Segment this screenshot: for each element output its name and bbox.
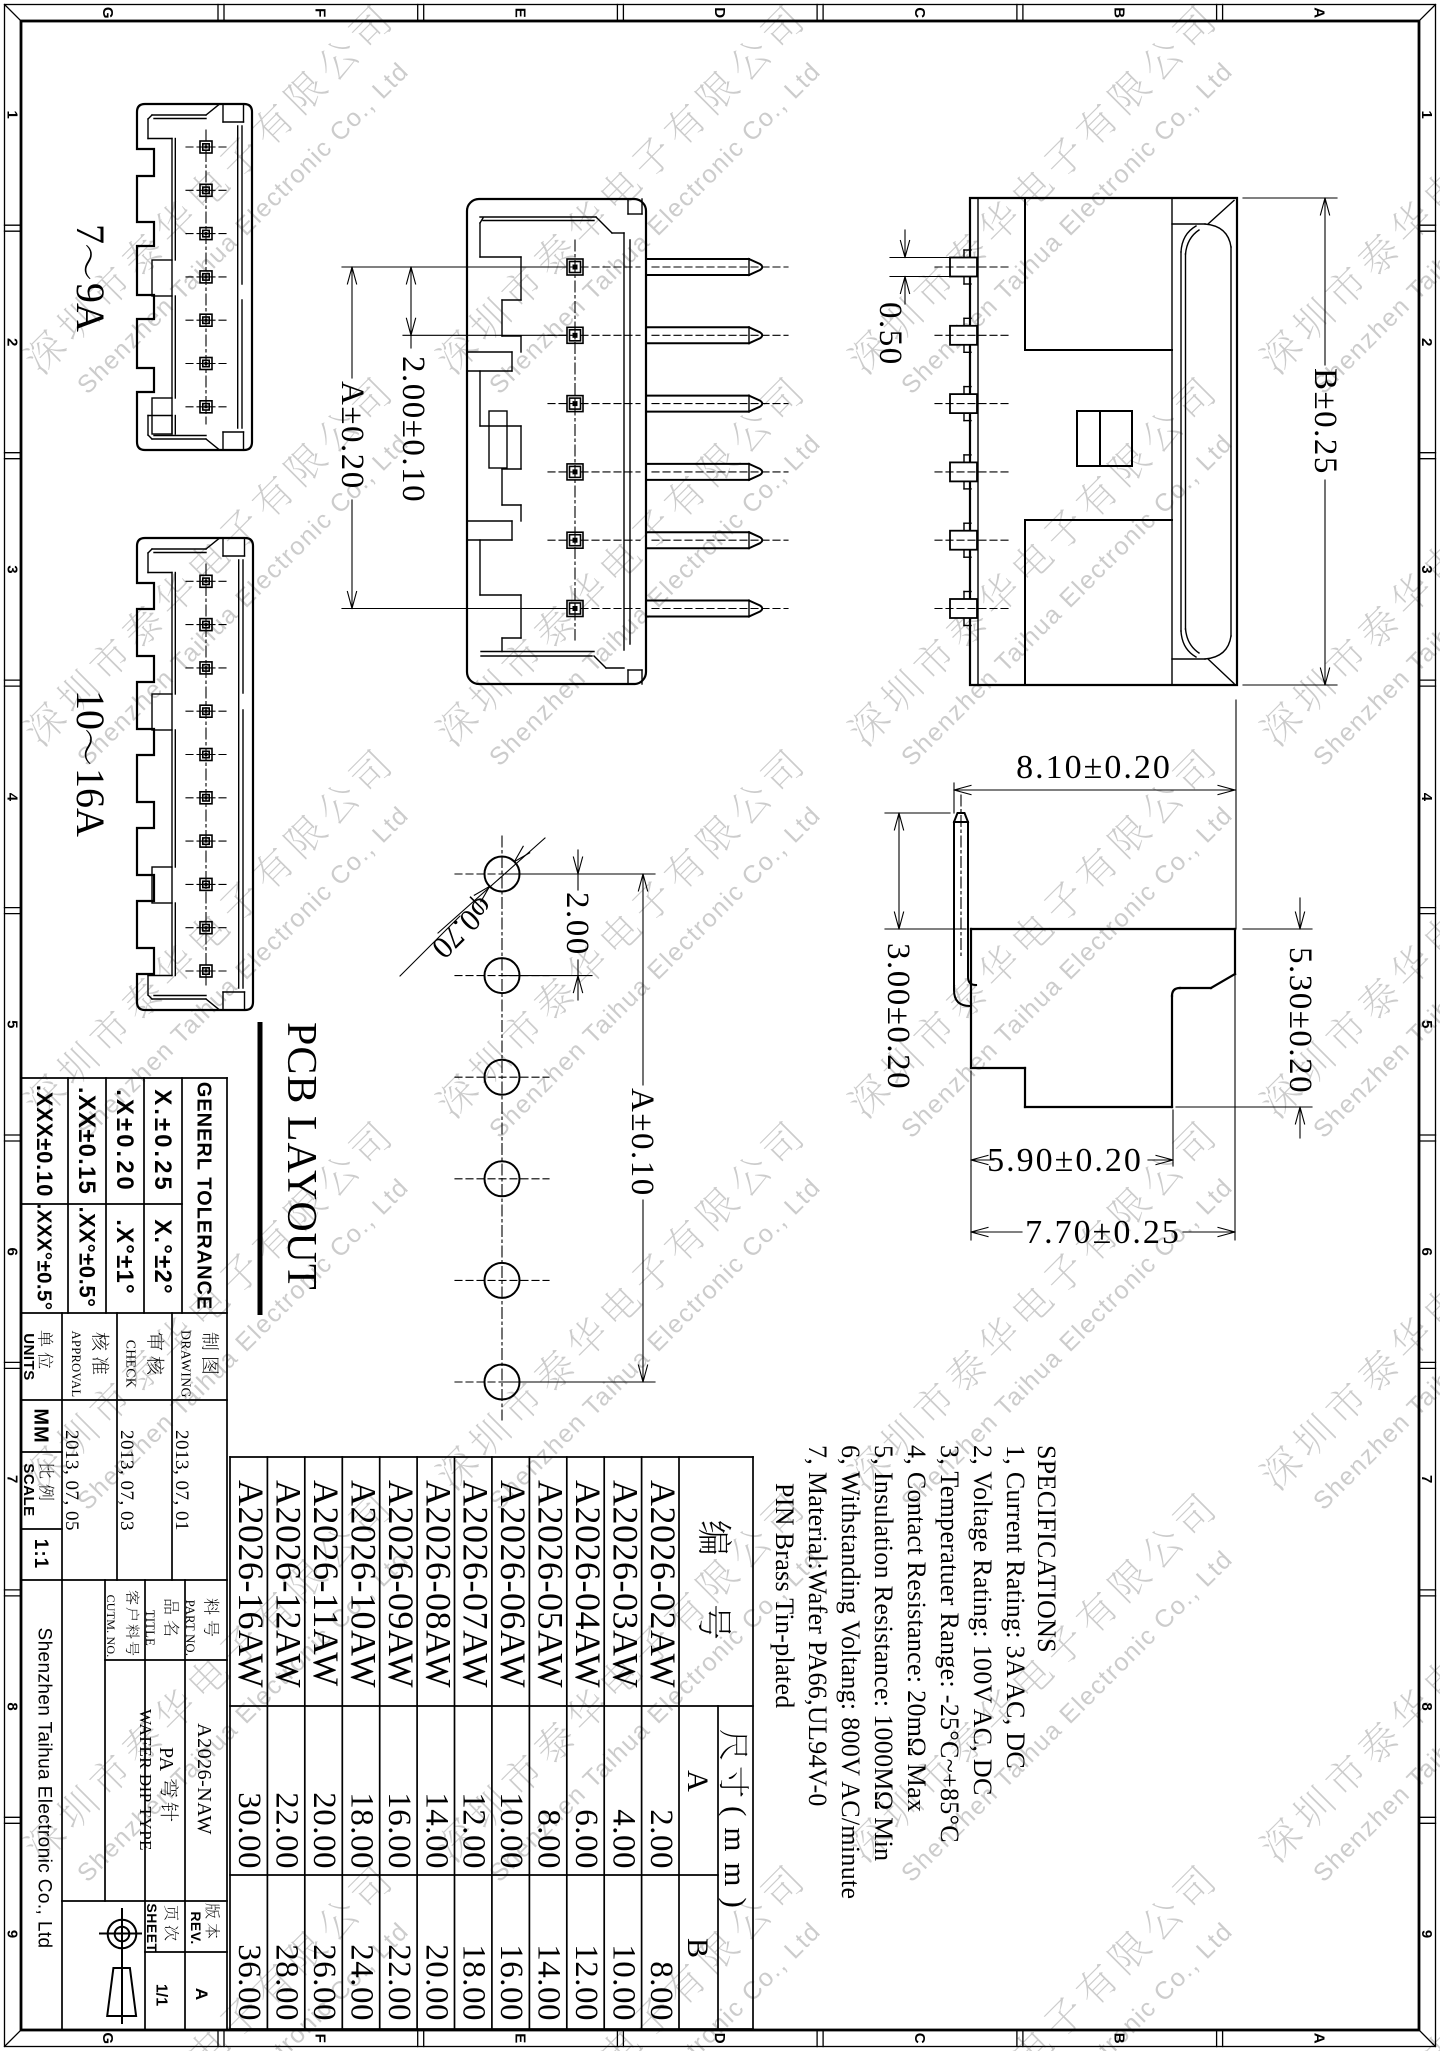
svg-text:A2026-08AW: A2026-08AW xyxy=(418,1480,458,1688)
svg-text:28.00: 28.00 xyxy=(269,1944,305,2021)
svg-text:2: 2 xyxy=(1418,338,1435,346)
svg-text:.XX°±0.5°: .XX°±0.5° xyxy=(75,1206,100,1307)
svg-text:9: 9 xyxy=(4,1930,21,1938)
svg-text:24.00: 24.00 xyxy=(344,1944,380,2021)
svg-text:PCB LAYOUT: PCB LAYOUT xyxy=(278,1022,324,1291)
svg-text:2: 2 xyxy=(4,338,21,346)
svg-text:PA: PA xyxy=(155,1747,177,1772)
svg-text:SCALE: SCALE xyxy=(20,1463,37,1516)
svg-text:3.00±0.20: 3.00±0.20 xyxy=(880,943,916,1090)
svg-text:3, Temperatuer Range: -25°C~+8: 3, Temperatuer Range: -25°C~+85°C xyxy=(935,1445,964,1843)
svg-text:.X°±1°: .X°±1° xyxy=(111,1219,138,1295)
svg-text:CHECK: CHECK xyxy=(123,1340,138,1388)
svg-text:A2026-16AW: A2026-16AW xyxy=(231,1480,271,1688)
svg-text:X.°±2°: X.°±2° xyxy=(149,1219,176,1295)
svg-text:A: A xyxy=(1310,7,1327,18)
svg-text:6: 6 xyxy=(1418,1248,1435,1256)
svg-text:A2026-07AW: A2026-07AW xyxy=(456,1480,496,1688)
svg-text:C: C xyxy=(911,2033,928,2044)
svg-text:A±0.20: A±0.20 xyxy=(334,381,370,490)
svg-text:PIN Brass Tin-plated: PIN Brass Tin-plated xyxy=(770,1483,799,1709)
svg-text:14.00: 14.00 xyxy=(531,1944,567,2021)
svg-text:22.00: 22.00 xyxy=(269,1792,305,1869)
svg-text:G: G xyxy=(99,7,116,19)
svg-text:2013, 07, 01: 2013, 07, 01 xyxy=(171,1430,192,1531)
svg-text:F: F xyxy=(312,8,329,17)
svg-text:7.70±0.25: 7.70±0.25 xyxy=(1025,1214,1181,1251)
svg-text:B: B xyxy=(1111,2033,1128,2044)
svg-text:A2026-04AW: A2026-04AW xyxy=(568,1480,608,1688)
svg-text:B: B xyxy=(1111,7,1128,18)
svg-text:10: 10 xyxy=(68,690,113,730)
svg-text:D: D xyxy=(711,7,728,18)
svg-text:0.50: 0.50 xyxy=(872,302,908,366)
svg-text:A±0.10: A±0.10 xyxy=(624,1088,660,1197)
svg-text:SPECIFICATIONS: SPECIFICATIONS xyxy=(1032,1445,1061,1653)
svg-text:7: 7 xyxy=(4,1475,21,1483)
svg-text:UNITS: UNITS xyxy=(20,1333,37,1381)
svg-text:2013, 07, 03: 2013, 07, 03 xyxy=(116,1430,137,1531)
svg-text:A: A xyxy=(192,1988,211,2000)
svg-text:5: 5 xyxy=(1418,1020,1435,1028)
svg-text:1:1: 1:1 xyxy=(30,1539,51,1569)
svg-text:A2026-05AW: A2026-05AW xyxy=(531,1480,571,1688)
svg-text:CUTM. NO.: CUTM. NO. xyxy=(104,1595,118,1658)
svg-text:Shenzhen Taihua Electronic Co.: Shenzhen Taihua Electronic Co., Ltd xyxy=(34,1627,55,1948)
svg-text:7: 7 xyxy=(1418,1475,1435,1483)
svg-text:2.00±0.10: 2.00±0.10 xyxy=(395,356,431,503)
svg-text:WAFER DIP TYPE: WAFER DIP TYPE xyxy=(136,1709,155,1851)
svg-text:4, Contact Resistance: 20mΩ Ma: 4, Contact Resistance: 20mΩ Max xyxy=(902,1445,931,1812)
svg-text:A2026-12AW: A2026-12AW xyxy=(269,1480,309,1688)
svg-text:X.±0.25: X.±0.25 xyxy=(149,1089,176,1193)
svg-text:DRAWING: DRAWING xyxy=(178,1330,193,1398)
svg-text:30.00: 30.00 xyxy=(231,1792,267,1869)
svg-text:2.00: 2.00 xyxy=(643,1809,679,1869)
svg-text:8.00: 8.00 xyxy=(531,1809,567,1869)
svg-text:F: F xyxy=(312,2034,329,2043)
svg-text:4: 4 xyxy=(1418,793,1435,802)
svg-text:APPROVAL: APPROVAL xyxy=(69,1331,83,1398)
svg-text:4.00: 4.00 xyxy=(605,1809,641,1869)
svg-text:A2026-03AW: A2026-03AW xyxy=(605,1480,645,1688)
svg-text:.XXX±0.10: .XXX±0.10 xyxy=(32,1085,57,1197)
svg-text:4: 4 xyxy=(4,793,21,802)
svg-text:8.00: 8.00 xyxy=(643,1961,679,2021)
svg-text:PART NO.: PART NO. xyxy=(183,1600,197,1657)
svg-text:MM: MM xyxy=(30,1408,52,1443)
svg-text:12.00: 12.00 xyxy=(456,1792,492,1869)
svg-text:A: A xyxy=(681,1770,714,1792)
svg-text:E: E xyxy=(511,8,528,18)
svg-text:5: 5 xyxy=(4,1020,21,1028)
svg-text:22.00: 22.00 xyxy=(381,1944,417,2021)
svg-text:6: 6 xyxy=(4,1248,21,1256)
svg-text:2013, 07, 05: 2013, 07, 05 xyxy=(61,1430,82,1531)
svg-text:9: 9 xyxy=(68,283,113,303)
svg-text:A2026-11AW: A2026-11AW xyxy=(306,1480,346,1687)
svg-text:.XX±0.15: .XX±0.15 xyxy=(73,1087,100,1195)
svg-text:B: B xyxy=(681,1938,714,1958)
svg-text:2, Voltage Rating: 100V AC, DC: 2, Voltage Rating: 100V AC, DC xyxy=(968,1445,997,1796)
svg-text:D: D xyxy=(711,2033,728,2044)
svg-text:20.00: 20.00 xyxy=(306,1792,342,1869)
svg-text:14.00: 14.00 xyxy=(418,1792,454,1869)
svg-text:5, Insulation Resistance: 1000: 5, Insulation Resistance: 1000MΩ Min xyxy=(869,1445,898,1861)
svg-text:2.00: 2.00 xyxy=(559,892,595,956)
svg-text:SHEET: SHEET xyxy=(144,1903,160,1952)
svg-text:.X±0.20: .X±0.20 xyxy=(111,1089,138,1193)
svg-text:3: 3 xyxy=(1418,565,1435,573)
svg-text:5.30±0.20: 5.30±0.20 xyxy=(1282,947,1318,1094)
svg-text:26.00: 26.00 xyxy=(306,1944,342,2021)
svg-text:18.00: 18.00 xyxy=(344,1792,380,1869)
svg-text:GENERL TOLERANCE: GENERL TOLERANCE xyxy=(193,1082,215,1311)
svg-text:1: 1 xyxy=(1418,111,1435,119)
svg-text:36.00: 36.00 xyxy=(231,1944,267,2021)
svg-text:10.00: 10.00 xyxy=(493,1792,529,1869)
svg-text:20.00: 20.00 xyxy=(418,1944,454,2021)
svg-text:8.10±0.20: 8.10±0.20 xyxy=(1016,749,1172,786)
svg-text:.XXX°±0.5°: .XXX°±0.5° xyxy=(33,1204,56,1311)
svg-text:6, Withstanding Voltang: 800V: 6, Withstanding Voltang: 800V AC/minute xyxy=(836,1445,865,1899)
svg-text:1, Current Rating: 3A AC, DC: 1, Current Rating: 3A AC, DC xyxy=(1001,1445,1030,1769)
svg-text:16A: 16A xyxy=(68,768,113,837)
svg-text:A2026-10AW: A2026-10AW xyxy=(344,1480,384,1688)
svg-text:5.90±0.20: 5.90±0.20 xyxy=(987,1142,1143,1179)
svg-text:3: 3 xyxy=(4,565,21,573)
svg-text:A: A xyxy=(68,303,113,332)
svg-text:(mm): (mm) xyxy=(718,1806,753,1919)
svg-text:C: C xyxy=(911,7,928,18)
svg-text:18.00: 18.00 xyxy=(456,1944,492,2021)
svg-text:A2026-NAW: A2026-NAW xyxy=(193,1723,215,1835)
svg-text:G: G xyxy=(99,2032,116,2044)
svg-text:12.00: 12.00 xyxy=(568,1944,604,2021)
svg-text:16.00: 16.00 xyxy=(381,1792,417,1869)
svg-text:A2026-09AW: A2026-09AW xyxy=(381,1480,421,1688)
svg-text:1: 1 xyxy=(4,111,21,119)
svg-text:9: 9 xyxy=(1418,1930,1435,1938)
svg-text:10.00: 10.00 xyxy=(605,1944,641,2021)
svg-text:8: 8 xyxy=(1418,1702,1435,1710)
svg-text:16.00: 16.00 xyxy=(493,1944,529,2021)
svg-text:7, Material:Wafer PA66,UL94V-0: 7, Material:Wafer PA66,UL94V-0 xyxy=(803,1445,832,1807)
svg-text:REV.: REV. xyxy=(188,1911,204,1944)
svg-text:8: 8 xyxy=(4,1702,21,1710)
svg-text:E: E xyxy=(511,2033,528,2043)
svg-text:A2026-06AW: A2026-06AW xyxy=(493,1480,533,1688)
svg-text:TITLE: TITLE xyxy=(143,1610,157,1646)
svg-text:1/1: 1/1 xyxy=(153,1984,170,2006)
svg-text:7: 7 xyxy=(68,224,113,244)
svg-text:A2026-02AW: A2026-02AW xyxy=(643,1480,683,1688)
svg-text:B±0.25: B±0.25 xyxy=(1307,368,1343,475)
svg-text:6.00: 6.00 xyxy=(568,1809,604,1869)
svg-text:A: A xyxy=(1310,2033,1327,2044)
